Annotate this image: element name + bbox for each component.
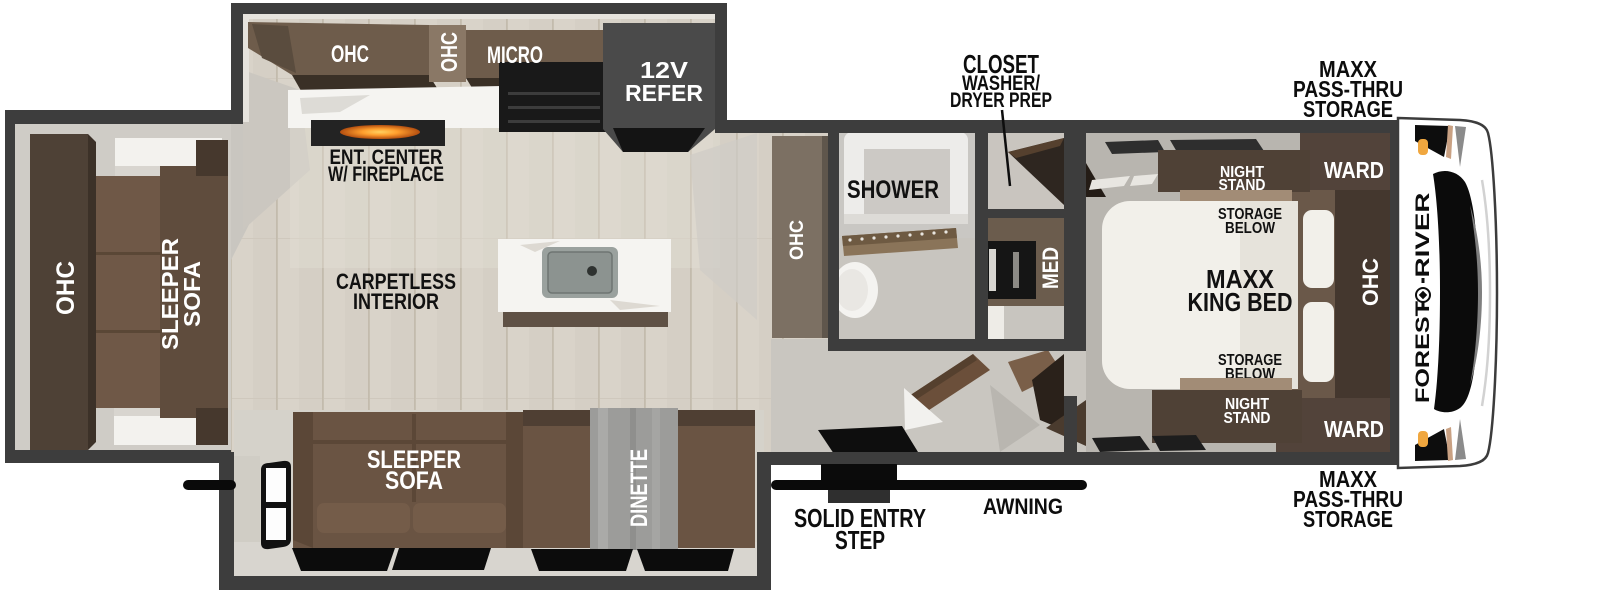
svg-text:OHC: OHC [1358, 258, 1383, 306]
svg-text:SOFA: SOFA [385, 467, 443, 495]
svg-text:KING BED: KING BED [1188, 287, 1293, 317]
svg-text:STAND: STAND [1219, 177, 1266, 194]
svg-text:MED: MED [1038, 247, 1063, 289]
svg-text:OHC: OHC [331, 41, 369, 68]
svg-text:OHC: OHC [787, 220, 808, 260]
svg-text:WARD: WARD [1324, 416, 1384, 442]
svg-text:STAND: STAND [1224, 410, 1271, 427]
svg-text:STORAGE: STORAGE [1303, 506, 1393, 532]
svg-text:DINETTE: DINETTE [626, 449, 653, 527]
svg-text:STEP: STEP [835, 525, 885, 555]
svg-text:STORAGE: STORAGE [1303, 96, 1393, 122]
svg-text:RIVER: RIVER [1413, 192, 1434, 277]
svg-text:OHC: OHC [52, 261, 80, 315]
svg-text:OHC: OHC [436, 32, 462, 72]
svg-text:SHOWER: SHOWER [847, 176, 939, 204]
svg-text:WARD: WARD [1324, 157, 1384, 183]
svg-text:DRYER PREP: DRYER PREP [950, 89, 1052, 112]
svg-text:AWNING: AWNING [983, 494, 1063, 519]
svg-text:REFER: REFER [625, 80, 703, 106]
svg-text:FOREST: FOREST [1413, 300, 1434, 403]
svg-text:BELOW: BELOW [1225, 220, 1275, 237]
svg-text:W/ FIREPLACE: W/ FIREPLACE [328, 163, 444, 186]
svg-text:MICRO: MICRO [487, 42, 543, 69]
svg-text:INTERIOR: INTERIOR [353, 289, 439, 314]
svg-text:SOFA: SOFA [179, 261, 205, 327]
